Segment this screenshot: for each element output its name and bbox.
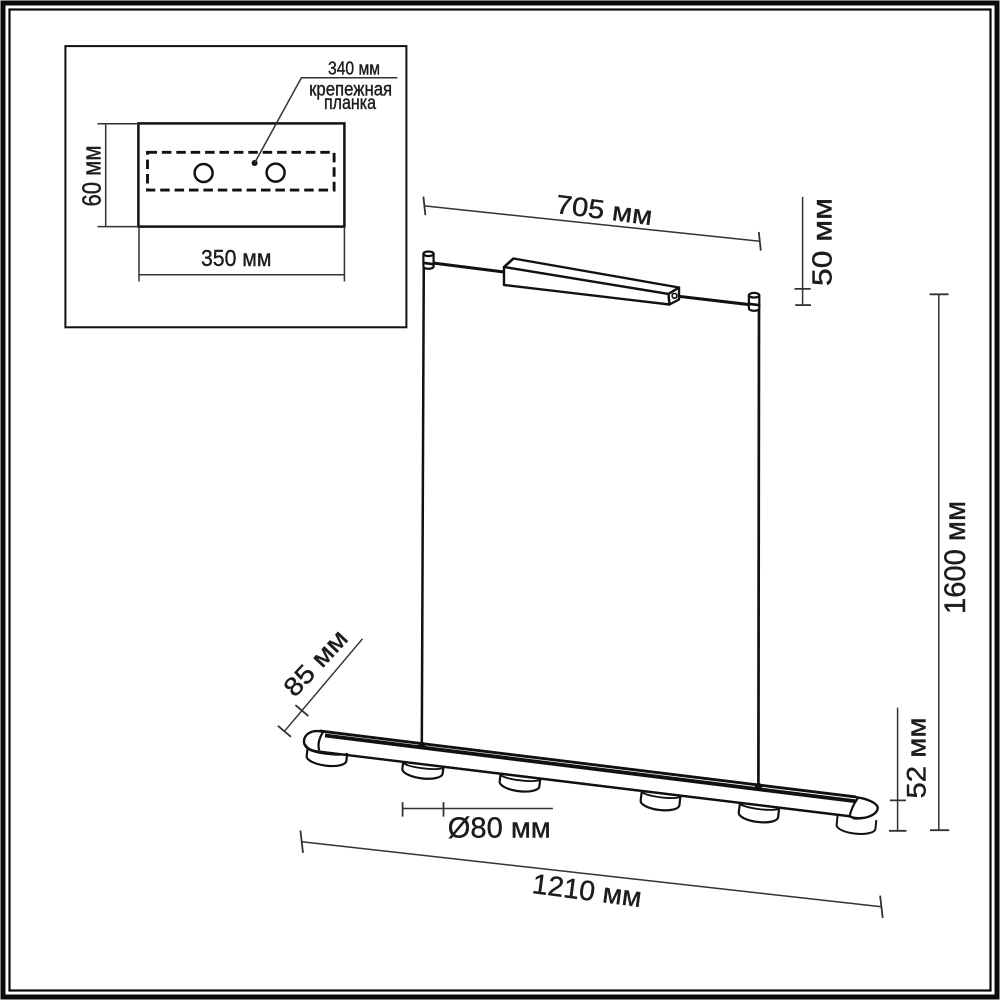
svg-text:350 мм: 350 мм bbox=[201, 245, 271, 271]
svg-text:340 мм: 340 мм bbox=[328, 58, 380, 78]
svg-text:планка: планка bbox=[324, 93, 376, 114]
svg-text:60 мм: 60 мм bbox=[79, 146, 107, 207]
svg-text:Ø80 мм: Ø80 мм bbox=[448, 813, 551, 845]
svg-text:50 мм: 50 мм bbox=[807, 198, 838, 286]
svg-text:52 мм: 52 мм bbox=[902, 718, 932, 799]
svg-text:1600 мм: 1600 мм bbox=[939, 501, 972, 614]
